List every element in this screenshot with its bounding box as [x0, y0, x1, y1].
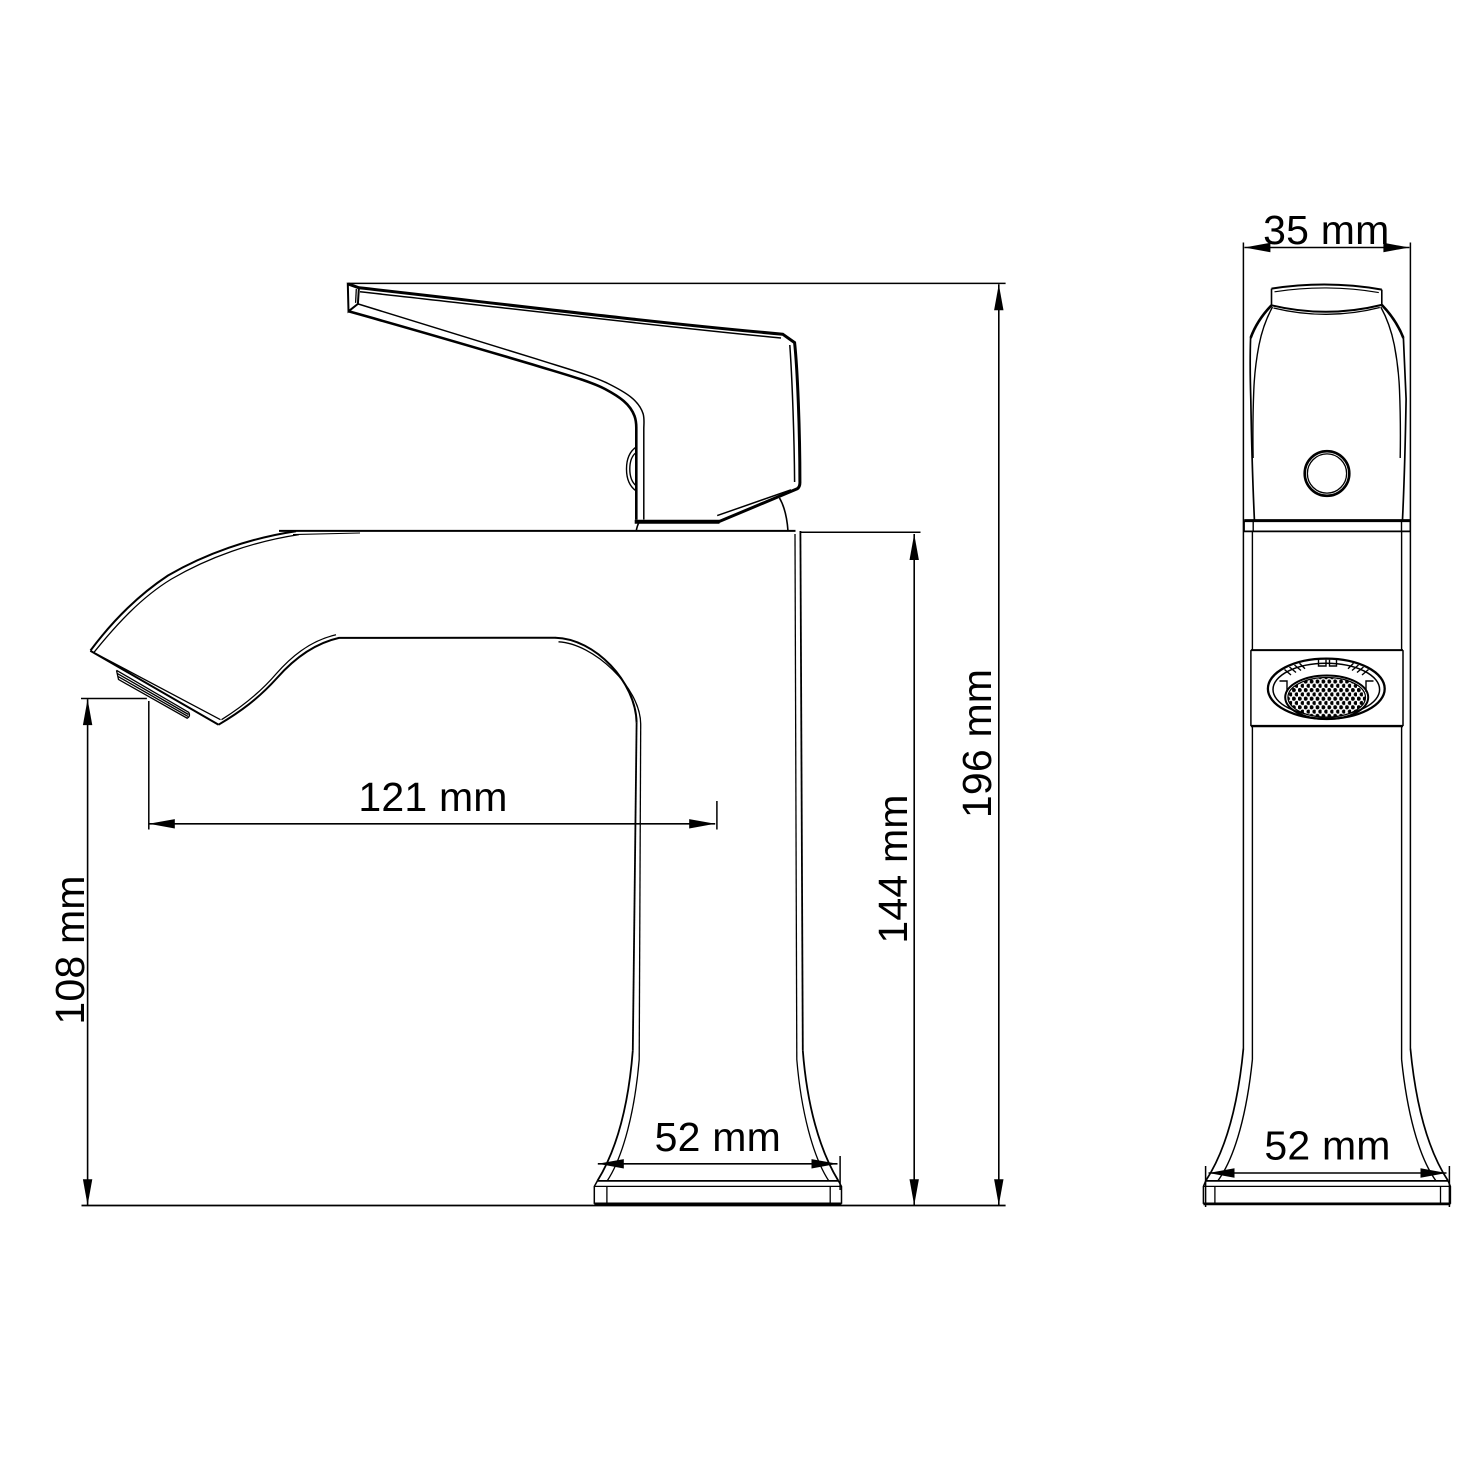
svg-text:121 mm: 121 mm	[358, 774, 507, 820]
svg-text:52 mm: 52 mm	[655, 1114, 781, 1160]
svg-text:35 mm: 35 mm	[1263, 207, 1389, 253]
svg-text:52 mm: 52 mm	[1264, 1123, 1390, 1169]
svg-text:108 mm: 108 mm	[47, 875, 93, 1024]
svg-text:196 mm: 196 mm	[954, 669, 1000, 818]
svg-text:144 mm: 144 mm	[870, 794, 916, 943]
